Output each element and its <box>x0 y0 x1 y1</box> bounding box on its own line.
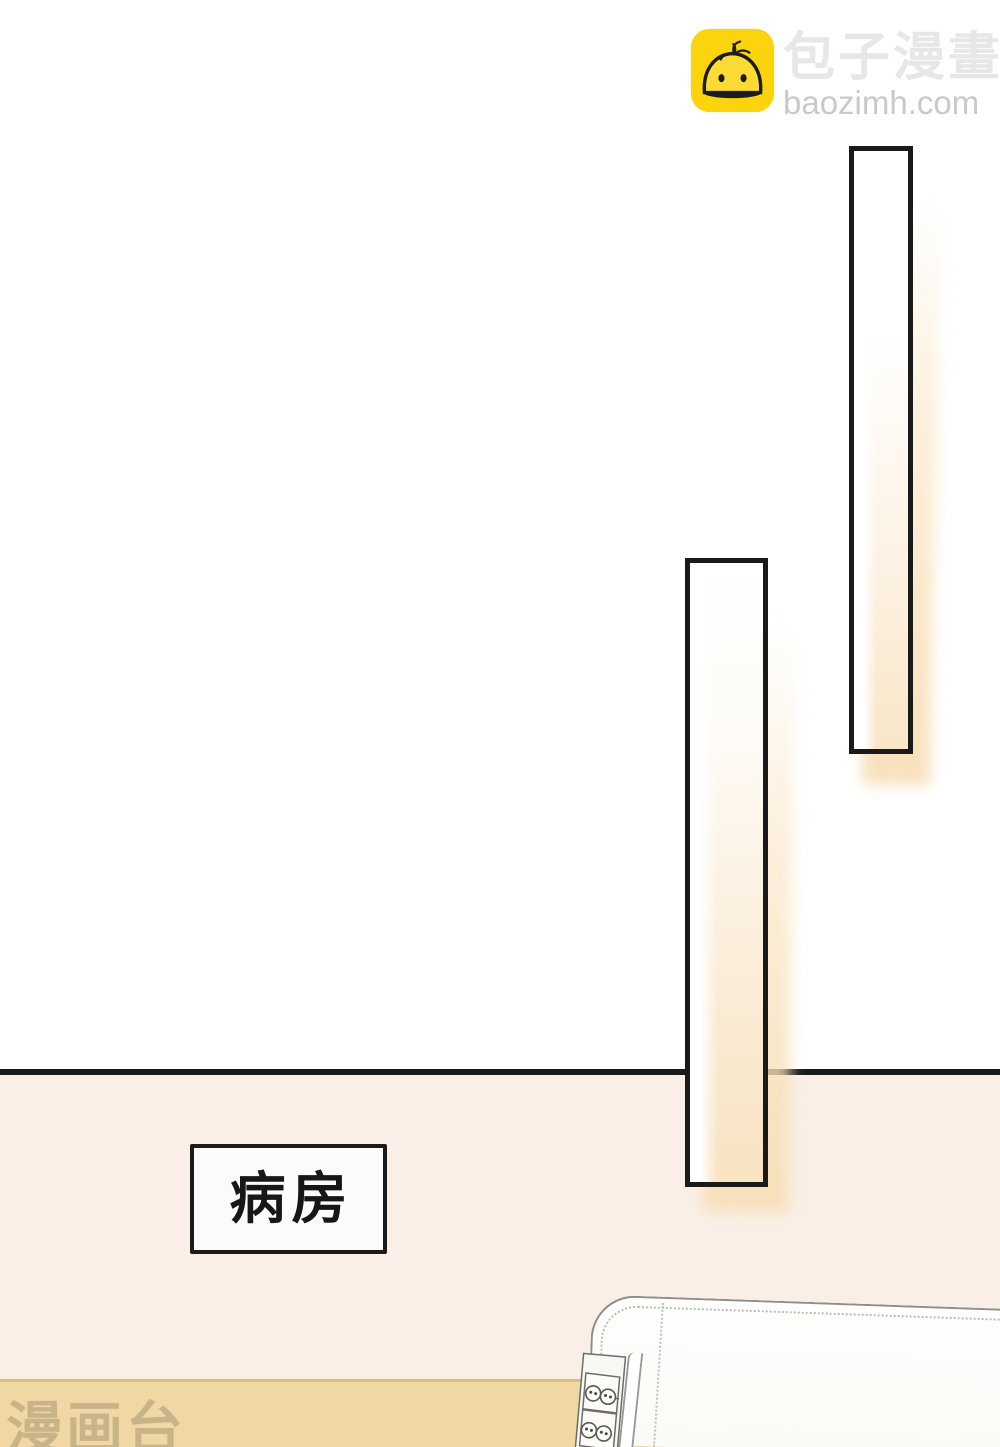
baozi-bun-icon <box>690 28 775 113</box>
site-logo: 包子漫畫 baozimh.com <box>690 28 1000 119</box>
headboard-seam <box>653 1303 664 1447</box>
ward-sign-label: 病房 <box>230 1171 354 1227</box>
watermark-text: 漫画台 <box>6 1383 186 1447</box>
wall-divider-line <box>0 1069 1000 1075</box>
outlet-plate-icon <box>583 1373 621 1413</box>
door-frame-middle <box>685 558 768 1187</box>
ward-sign: 病房 <box>190 1144 387 1254</box>
comic-page: 漫画台 病房 <box>0 0 1000 1447</box>
power-outlet-panel <box>572 1351 631 1447</box>
outlet-plate-icon <box>579 1410 616 1447</box>
site-name: 包子漫畫 <box>783 32 1000 84</box>
site-logo-text: 包子漫畫 baozimh.com <box>783 28 1000 119</box>
site-url: baozimh.com <box>783 86 1000 119</box>
bed-headboard <box>587 1294 1000 1447</box>
door-frame-right <box>849 146 913 754</box>
